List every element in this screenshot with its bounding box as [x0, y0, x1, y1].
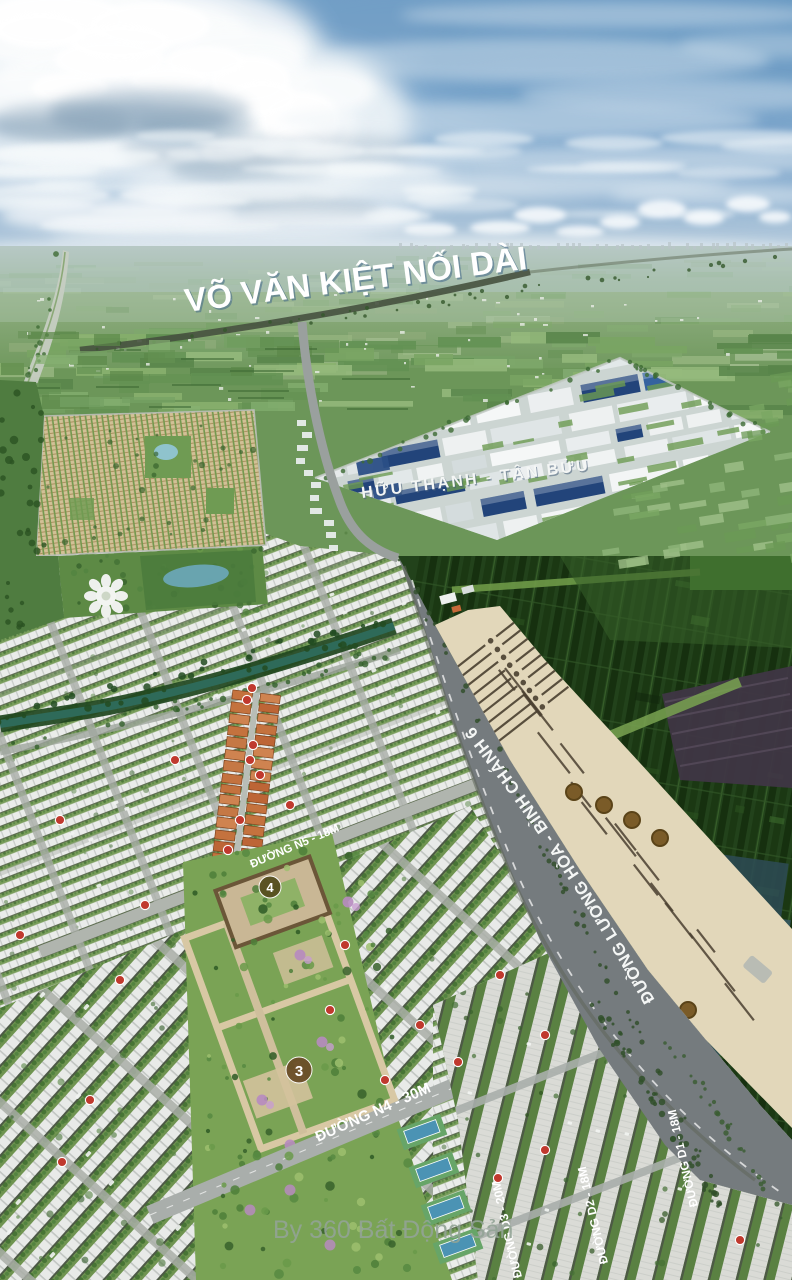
- svg-text:4: 4: [266, 880, 274, 895]
- svg-text:3: 3: [295, 1063, 303, 1080]
- svg-text:By 360 Bất Động Sản: By 360 Bất Động Sản: [273, 1216, 513, 1244]
